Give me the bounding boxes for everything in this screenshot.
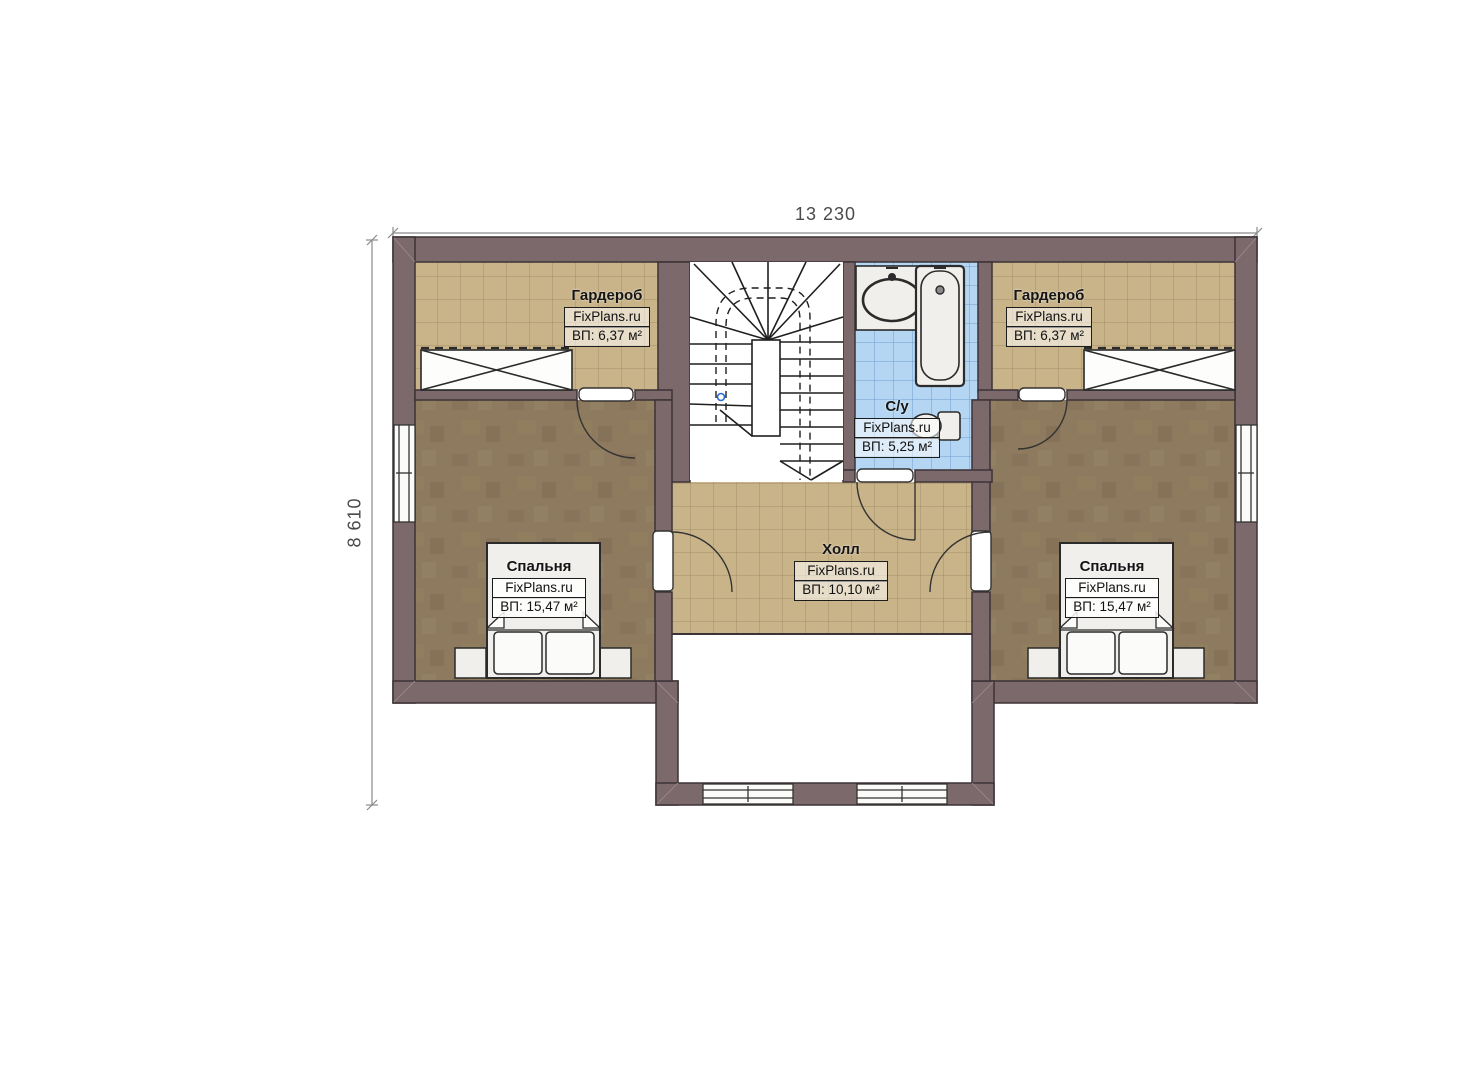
room-label-wardrobe-right: Гардероб FixPlans.ru ВП: 6,37 м²	[969, 287, 1129, 347]
room-label-bedroom-right: Спальня FixPlans.ru ВП: 15,47 м²	[1032, 558, 1192, 618]
room-area-wardrobe-right: ВП: 6,37 м²	[1006, 326, 1092, 347]
label-box: FixPlans.ru ВП: 15,47 м²	[492, 578, 586, 618]
wall-bottom-left	[393, 681, 678, 703]
wall-bottom-right	[972, 681, 1257, 703]
label-box: FixPlans.ru ВП: 6,37 м²	[1006, 307, 1092, 347]
stair-start-marker	[718, 394, 725, 401]
room-area-bathroom: ВП: 5,25 м²	[854, 437, 940, 458]
dimension-height-label: 8 610	[345, 497, 366, 547]
dimension-line-left	[366, 235, 378, 810]
pillow	[1119, 632, 1167, 674]
wall-wardrobeR-a	[978, 390, 1018, 400]
wardrobe-unit-right	[1084, 348, 1235, 390]
label-box: FixPlans.ru ВП: 5,25 м²	[854, 418, 940, 458]
room-name-wardrobe-right: Гардероб	[969, 287, 1129, 304]
wall-top	[393, 237, 1257, 262]
pillow	[494, 632, 542, 674]
room-name-bedroom-right: Спальня	[1032, 558, 1192, 575]
window-bump-1	[703, 784, 793, 804]
wall-bath-bottom-a	[843, 470, 855, 482]
watermark-fixplans: FixPlans.ru	[564, 307, 650, 328]
window-bump-2	[857, 784, 947, 804]
window-right	[1236, 425, 1257, 522]
nightstand	[455, 648, 486, 678]
watermark-fixplans: FixPlans.ru	[1065, 578, 1159, 599]
wall-wardrobeR-b	[1067, 390, 1235, 400]
label-box: FixPlans.ru ВП: 6,37 м²	[564, 307, 650, 347]
watermark-fixplans: FixPlans.ru	[492, 578, 586, 599]
label-box: FixPlans.ru ВП: 15,47 м²	[1065, 578, 1159, 618]
room-label-bathroom: С/у FixPlans.ru ВП: 5,25 м²	[817, 398, 977, 458]
nightstand	[1028, 648, 1059, 678]
floorplan-drawing	[0, 0, 1473, 1080]
wall-bath-bottom-b	[915, 470, 992, 482]
watermark-fixplans: FixPlans.ru	[1006, 307, 1092, 328]
wall-bedroomR-b	[972, 592, 990, 681]
wall-wardrobeL-a	[415, 390, 577, 400]
room-name-bedroom-left: Спальня	[459, 558, 619, 575]
room-label-hall: Холл FixPlans.ru ВП: 10,10 м²	[761, 541, 921, 601]
nightstand	[600, 648, 631, 678]
wall-bedroomL-b	[655, 592, 672, 681]
room-area-wardrobe-left: ВП: 6,37 м²	[564, 326, 650, 347]
room-name-hall: Холл	[761, 541, 921, 558]
room-label-wardrobe-left: Гардероб FixPlans.ru ВП: 6,37 м²	[527, 287, 687, 347]
room-name-bathroom: С/у	[817, 398, 977, 415]
label-box: FixPlans.ru ВП: 10,10 м²	[794, 561, 888, 601]
room-label-bedroom-left: Спальня FixPlans.ru ВП: 15,47 м²	[459, 558, 619, 618]
pillow	[546, 632, 594, 674]
room-area-bedroom-right: ВП: 15,47 м²	[1065, 597, 1159, 618]
watermark-fixplans: FixPlans.ru	[854, 418, 940, 439]
wall-wardrobeL-b	[635, 390, 672, 400]
dimension-width-label: 13 230	[795, 204, 856, 225]
wall-bedroomL-a	[655, 400, 672, 532]
watermark-fixplans: FixPlans.ru	[794, 561, 888, 582]
nightstand	[1173, 648, 1204, 678]
pillow	[1067, 632, 1115, 674]
floorplan-canvas: 13 230 8 610 Гардероб FixPlans.ru ВП: 6,…	[0, 0, 1473, 1080]
room-area-hall: ВП: 10,10 м²	[794, 580, 888, 601]
bathtub	[916, 266, 964, 386]
room-area-bedroom-left: ВП: 15,47 м²	[492, 597, 586, 618]
window-left	[394, 425, 415, 522]
room-name-wardrobe-left: Гардероб	[527, 287, 687, 304]
wardrobe-unit-left	[421, 348, 572, 390]
